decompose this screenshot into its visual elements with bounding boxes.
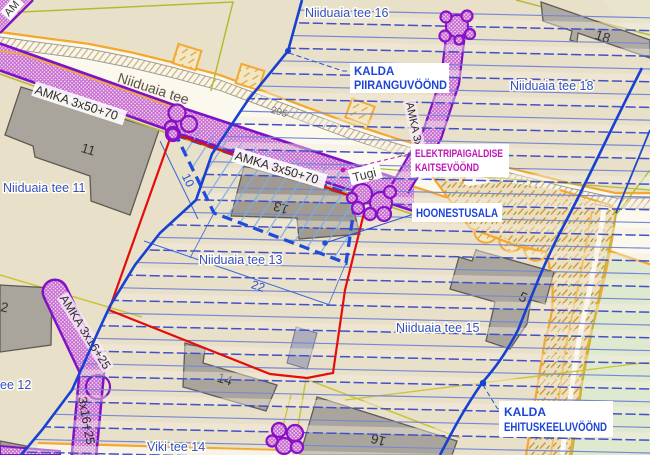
- svg-text:KAITSEVÖÖND: KAITSEVÖÖND: [415, 161, 479, 174]
- svg-text:Niiduaia tee 15: Niiduaia tee 15: [396, 321, 479, 335]
- svg-text:Niiduaia tee 13: Niiduaia tee 13: [199, 253, 282, 267]
- svg-text:Niiduaia tee 16: Niiduaia tee 16: [305, 6, 388, 20]
- svg-text:Niiduaia tee 11: Niiduaia tee 11: [3, 181, 86, 195]
- svg-text:KALDA: KALDA: [504, 405, 546, 419]
- svg-text:HOONESTUSALA: HOONESTUSALA: [416, 206, 498, 220]
- svg-text:ee 12: ee 12: [0, 378, 31, 392]
- svg-text:Viki tee 14: Viki tee 14: [147, 440, 205, 454]
- svg-text:EHITUSKEELUVÖÖND: EHITUSKEELUVÖÖND: [504, 419, 607, 434]
- svg-text:ELEKTRIPAIGALDISE: ELEKTRIPAIGALDISE: [415, 148, 503, 160]
- svg-text:Niiduaia tee 18: Niiduaia tee 18: [510, 79, 593, 93]
- svg-text:KALDA: KALDA: [354, 66, 394, 78]
- svg-text:PIIRANGUVÖÖND: PIIRANGUVÖÖND: [354, 79, 447, 92]
